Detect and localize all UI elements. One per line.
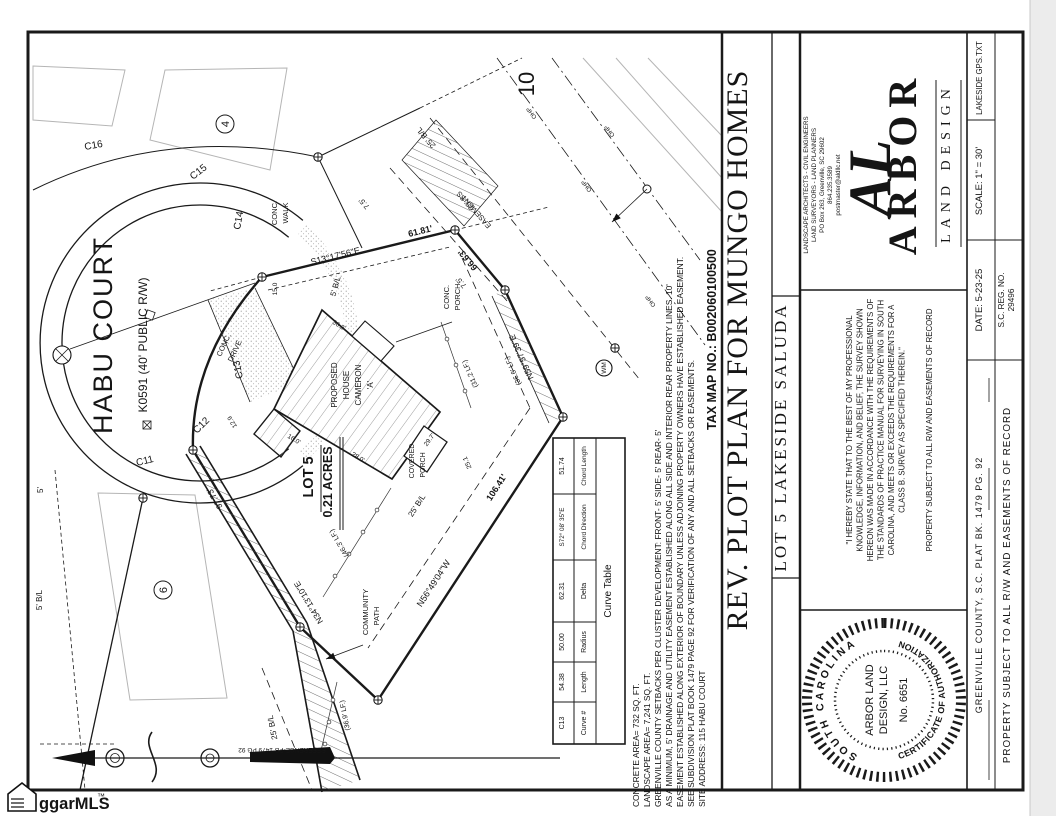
curve-table-header: Delta [581, 583, 588, 599]
sheet-subtitle: LOT 5 LAKESIDE SALUDA [771, 302, 790, 571]
sewer-manhole-icon [53, 346, 71, 364]
community-path-arrow [325, 645, 363, 662]
firm-contact-line: LANDSCAPE ARCHITECTS - CIVIL ENGINEERS [803, 116, 810, 253]
firm-contact-line: PO Box 263, Greenville, SC 29602 [819, 137, 826, 233]
curve-table-title: Curve Table [603, 564, 614, 618]
certification-block: "I HEREBY STATE THAT TO THE BEST OF MY P… [845, 299, 934, 562]
note-line: CONCRETE AREA= 732 SQ. FT. [631, 683, 641, 807]
lot10-number: 10 [514, 72, 539, 96]
curve-label-c14: C14 [232, 210, 246, 230]
survey-pin-icon [139, 494, 147, 502]
note-line: AS A MINIMUM, 5' DRAINAGE AND UTILITY EA… [664, 284, 674, 807]
tax-map-number: TAX MAP NO.: B002060100500 [705, 249, 719, 430]
conc-walk-label-1: CONC. [270, 201, 279, 225]
setback-label-5bl: 5' B/L [35, 589, 44, 610]
curve-label-c11: C11 [135, 454, 155, 469]
curve-label-c15: C15 [188, 162, 210, 182]
reference-note: REFERENCE-PB 1479 PG 92 [238, 746, 326, 753]
setback-5-line-west [55, 470, 85, 790]
house-label-line3: CAMERON [354, 364, 363, 405]
scale-label: SCALE: 1" = 30' [974, 147, 985, 215]
street-approach-arc [33, 146, 318, 190]
curve-table: Curve Table Chord Length Chord Direction… [553, 438, 625, 744]
sheet-title: REV. PLOT PLAN FOR MUNGO HOMES [721, 70, 754, 631]
dim-label: 15.0 [272, 282, 279, 295]
house-label-line1: PROPOSED [330, 362, 339, 408]
easement-hatch [402, 120, 498, 226]
lot6-building-outline [98, 493, 227, 700]
curve-table-cell: 50.00 [559, 633, 566, 651]
lot4-rear-line [318, 157, 362, 248]
survey-pin-icon [451, 226, 459, 234]
setback-label-25bl: 25' B/L [266, 714, 280, 740]
curve-table-header: Length [581, 671, 588, 693]
seal-center-line: DESIGN, LLC [878, 666, 890, 735]
seal-stamp: SOUTH CAROLINA CERTIFICATE OF AUTHORIZAT… [807, 623, 961, 777]
lf-callout-3: (46.3' LF.) [329, 528, 351, 558]
conc-porch-label-1: CONC. [442, 285, 451, 309]
water-meter-label: WM [601, 362, 608, 374]
curve-table-cell: C13 [559, 716, 566, 729]
firm-logo-block: LANDSCAPE ARCHITECTS - CIVIL ENGINEERS L… [803, 71, 961, 255]
firm-contact-line: LAND SURVEYORS - LAND PLANNERS [811, 128, 818, 242]
survey-pin-icon [374, 696, 382, 704]
lf-callout-1: (31.2 LF.) [461, 359, 479, 389]
dim-label: 12.9 [226, 414, 239, 429]
setback-label-25bl: 25' B/L [406, 492, 427, 518]
lot10-line-3 [648, 58, 722, 136]
lot6-number: 6 [158, 587, 170, 593]
lot6-street-line [80, 498, 143, 790]
lot4-side-line [318, 108, 420, 157]
bearing-rear-line: N56°49'04"W [415, 558, 453, 609]
scan-edge [1030, 0, 1056, 816]
notes-column: CONCRETE AREA= 732 SQ. FT. LANDSCAPE ARE… [631, 249, 719, 807]
house-label-line4: 'A' [366, 380, 375, 389]
community-path-band [186, 446, 307, 631]
lot-line-extension-dash [420, 58, 522, 108]
survey-pin-icon [258, 273, 266, 281]
certification-line: PROPERTY SUBJECT TO ALL R/W AND EASEMENT… [925, 308, 934, 551]
certification-line: CAROLINA, AND MEETS OR EXCEEDS THE REQUI… [887, 304, 896, 555]
certification-line: "I HEREBY STATE THAT TO THE BEST OF MY P… [845, 315, 854, 545]
seal-arc-top: SOUTH CAROLINA [814, 637, 859, 763]
subject-note-line: PROPERTY SUBJECT TO ALL R/W AND EASEMENT… [1002, 407, 1013, 763]
curve-label-c16: C16 [84, 139, 104, 153]
distance-east-corner: 66.63' [456, 247, 480, 272]
svg-text:SOUTH CAROLINA: SOUTH CAROLINA [814, 637, 859, 763]
certification-line: THE STANDARDS OF PRACTICE MANUAL FOR SUR… [877, 300, 886, 560]
curve-table-header: Chord Direction [581, 504, 588, 550]
survey-pin-icon [314, 153, 322, 161]
setback-label-75: 7.5' [356, 196, 371, 211]
watermark: ggarMLS ™ [8, 783, 110, 813]
dim-label: 25.1 [462, 455, 474, 470]
ohp-label: OHP [581, 179, 594, 193]
curve-table-header: Chord Length [581, 446, 588, 486]
lot4-number: 4 [220, 121, 232, 127]
lot5-area-label: 0.21 ACRES [321, 446, 335, 517]
note-line: GREENVILLE COUNTY SETBACKS PER CLUSTER D… [653, 429, 663, 807]
registration-label: S.C. REG. NO. [997, 272, 1006, 327]
curve-table-header: Radius [581, 631, 588, 653]
title-block: REV. PLOT PLAN FOR MUNGO HOMES LOT 5 LAK… [721, 32, 1023, 790]
curve-table-header: Curve # [581, 711, 588, 736]
house-label-line2: HOUSE [342, 371, 351, 399]
firm-name: ARBOR [880, 71, 925, 255]
survey-pin-icon [501, 286, 509, 294]
seal-center-line: ARBOR LAND [864, 664, 876, 736]
survey-pin-icon [611, 344, 619, 352]
site-drawing: WM 4 6 10 HABU COURT K0591 (40' PUBLIC R… [33, 58, 722, 807]
conc-porch-leader [396, 322, 452, 342]
note-line: EASEMENT ESTABLISHED ALONG EXTERIOR OF B… [675, 257, 685, 807]
conc-walk-label-2: WALK [281, 203, 290, 224]
firm-contact-line: 864.235.3589 [827, 166, 834, 204]
street-name-label: HABU COURT [88, 236, 118, 434]
note-line: SITE ADDRESS: 115 HABU COURT [697, 670, 707, 807]
scanned-plot-plan-page: WM 4 6 10 HABU COURT K0591 (40' PUBLIC R… [0, 0, 1056, 816]
curve-table-cell: 51.74 [559, 457, 566, 475]
covered-porch-label-1: COVERED [409, 444, 416, 479]
firm-tagline: LAND DESIGN [939, 83, 954, 243]
community-path-band-lower [293, 623, 360, 792]
seal-center-line: No. 6651 [898, 678, 910, 723]
covered-porch-label-2: PORCH [420, 452, 427, 477]
date-label: DATE: 5-23-25 [974, 269, 985, 332]
lot10-line-1 [583, 58, 722, 212]
certification-line: KNOWLEDGE, INFORMATION, AND BELIEF, THE … [856, 308, 865, 551]
curve-table-cell: S72° 08' 35"E [558, 508, 566, 547]
ohp-line-2 [552, 58, 700, 260]
curve-table-cell: 62.31 [559, 582, 566, 600]
curve-table-cell: 54.38 [559, 673, 566, 691]
community-path-label-2: PATH [372, 607, 381, 626]
county-plat-line: GREENVILLE COUNTY, S.C. PLAT BK. 1479 PG… [974, 457, 984, 714]
site-plan-svg: WM 4 6 10 HABU COURT K0591 (40' PUBLIC R… [0, 0, 1056, 816]
community-path-label-1: COMMUNITY [361, 589, 370, 635]
certification-line: HEREON WAS MADE IN ACCORDANCE WITH THE R… [866, 299, 875, 562]
survey-pin-icon [189, 446, 197, 454]
setback-label-5: 5' [36, 487, 45, 493]
ohp-label: OHP [604, 124, 617, 138]
file-reference: LAKESIDE GPS.TXT [975, 41, 984, 115]
water-meter-icon: WM [596, 360, 612, 376]
lot5-name-label: LOT 5 [301, 456, 317, 497]
street-marker-icon [143, 421, 151, 429]
ohp-label: OHP [645, 294, 658, 308]
registration-number: 29496 [1007, 288, 1016, 311]
lot4-building-outline [150, 68, 287, 170]
north-arrow-icon [52, 732, 560, 782]
survey-pin-icon [296, 623, 304, 631]
street-designation-label: K0591 (40' PUBLIC R/W) [136, 277, 150, 412]
adjacent-building-outline [33, 66, 125, 126]
distance-rear-line: 106.41' [484, 472, 509, 502]
watermark-tm: ™ [97, 792, 105, 801]
certification-line: CLASS B. SURVEY AS SPECIFIED THEREIN." [898, 347, 907, 513]
note-line: SEE SUBDIVISION PLAT BOOK 1479 PAGE 92 F… [686, 360, 696, 807]
lot10-line-2 [616, 58, 722, 178]
utility-pole-icon [610, 185, 651, 224]
note-line: LANDSCAPE AREA= 7,241 SQ. FT. [642, 673, 652, 807]
survey-pin-icon [559, 413, 567, 421]
